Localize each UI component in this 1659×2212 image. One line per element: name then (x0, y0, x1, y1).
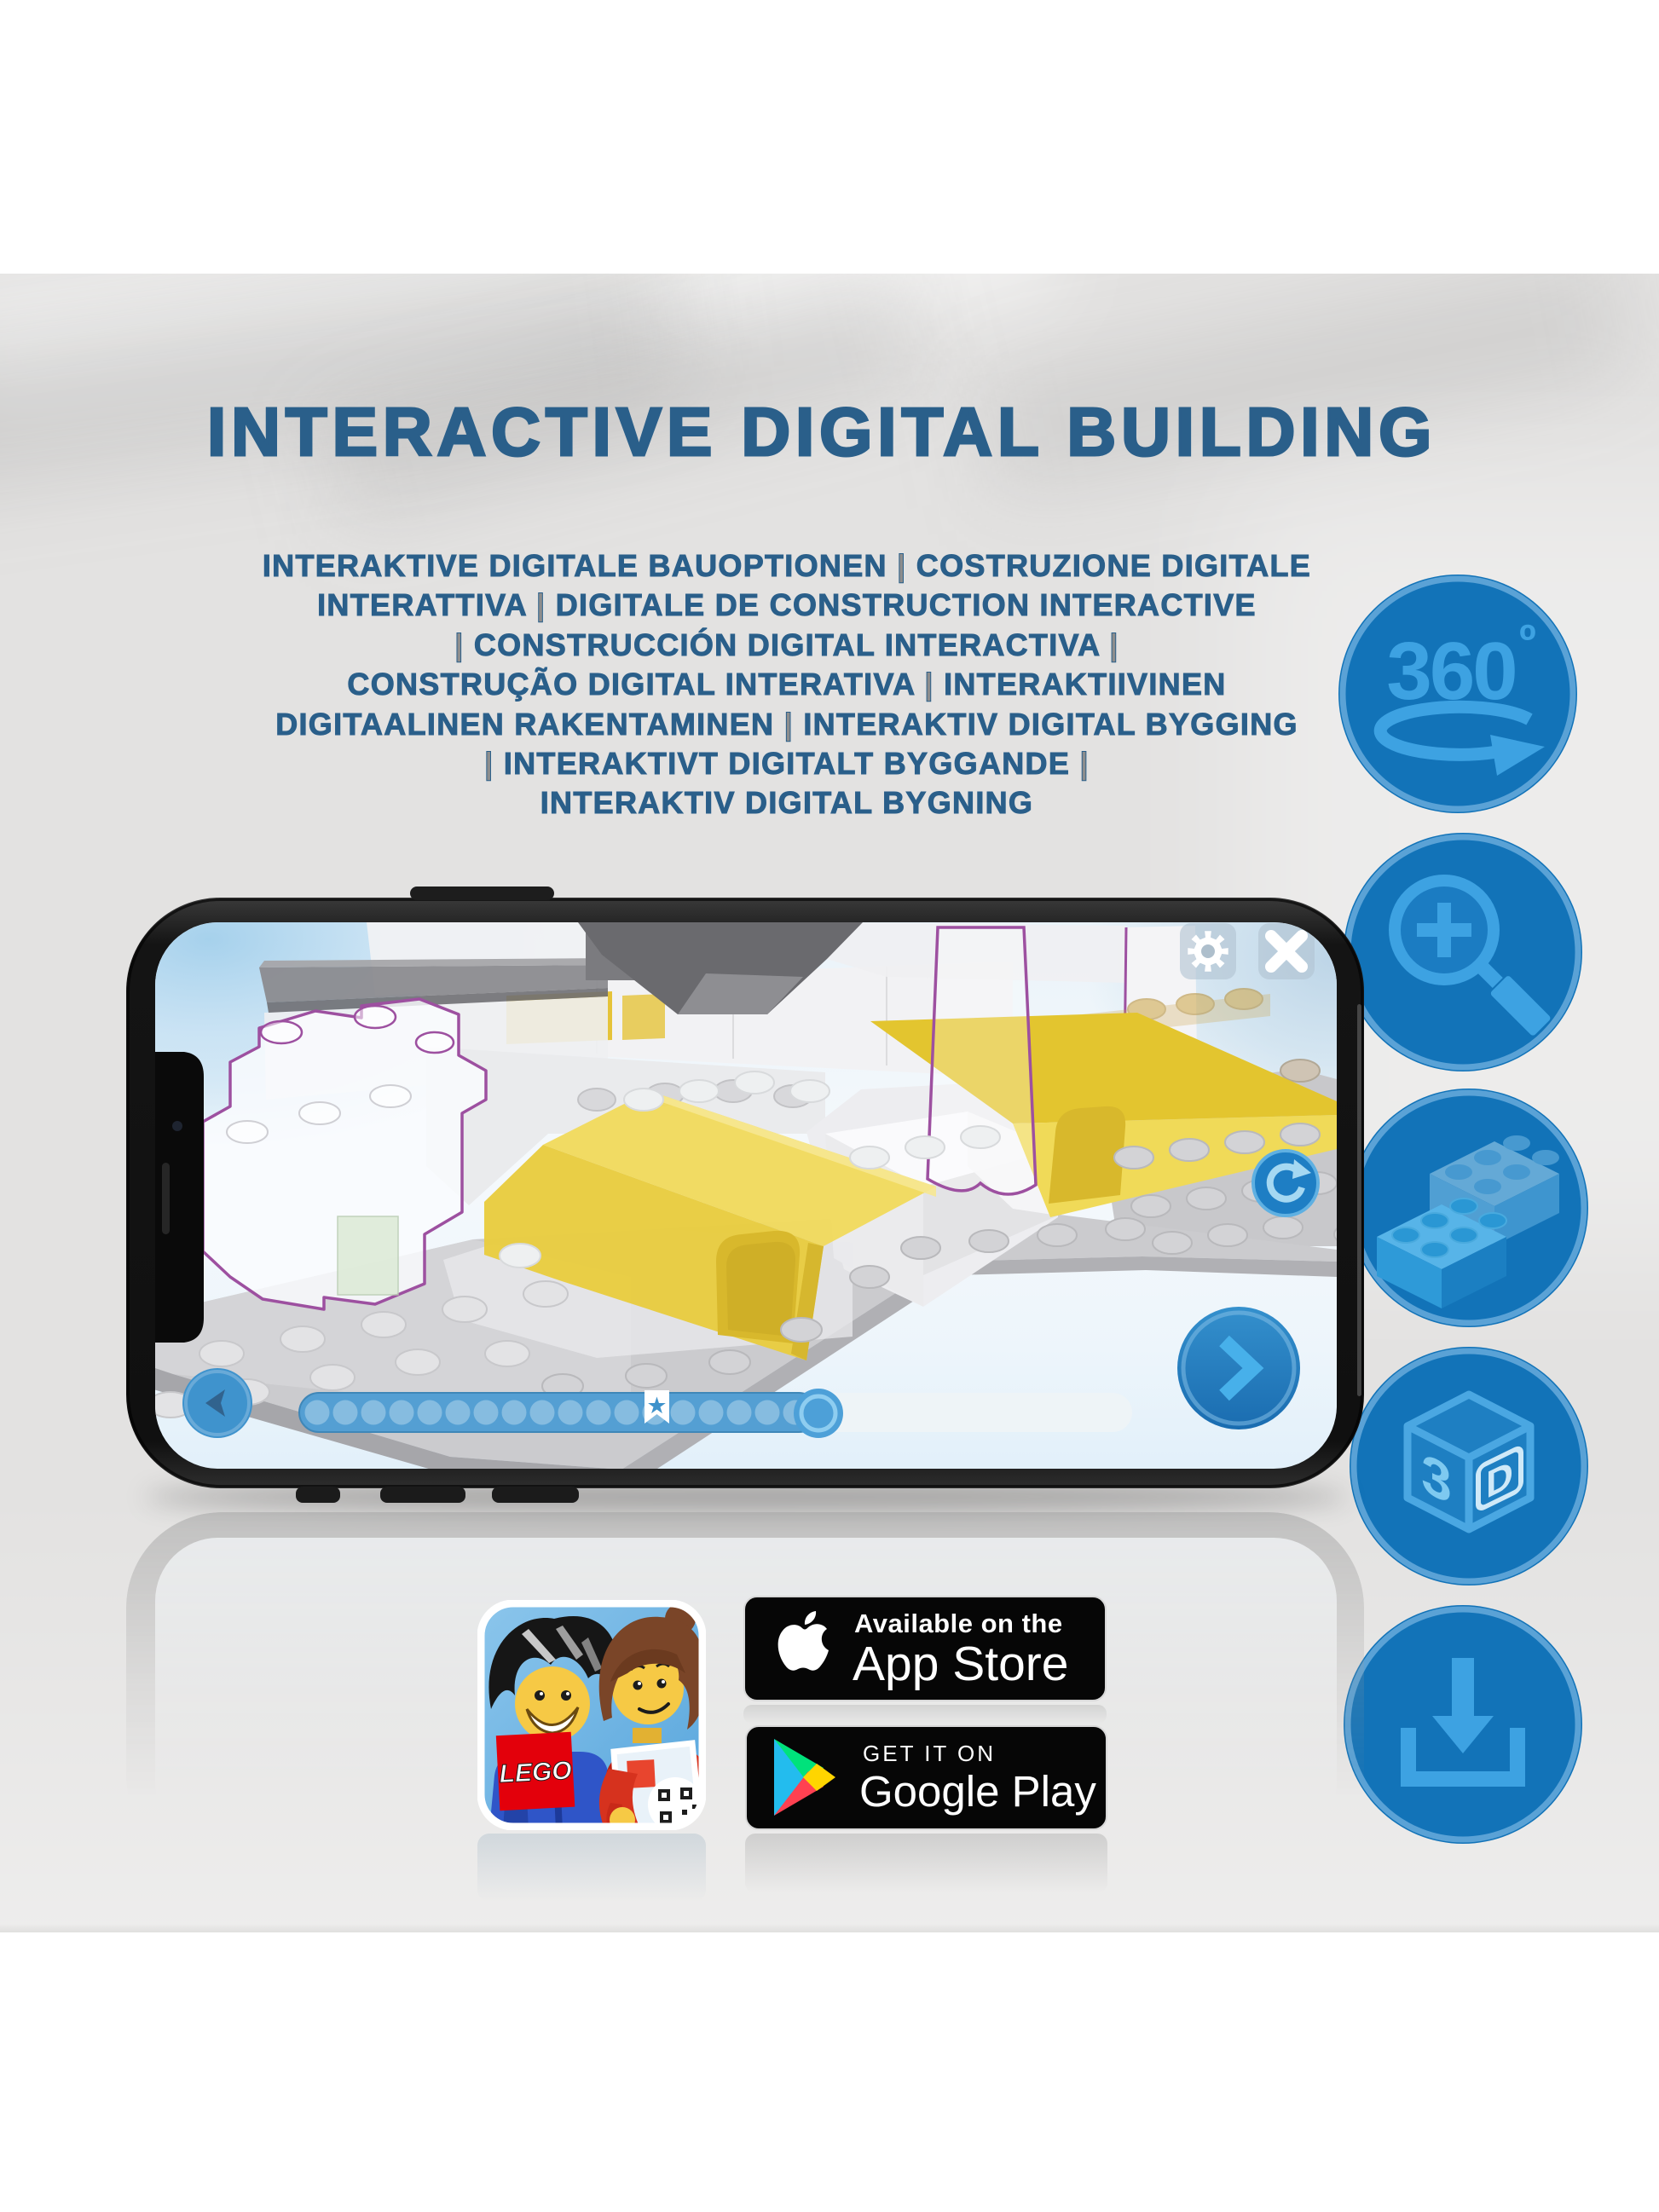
svg-text:★: ★ (646, 1393, 667, 1418)
svg-text:º: º (1519, 615, 1536, 667)
svg-text:360: 360 (1386, 626, 1515, 717)
svg-text:LEGO: LEGO (499, 1757, 573, 1788)
